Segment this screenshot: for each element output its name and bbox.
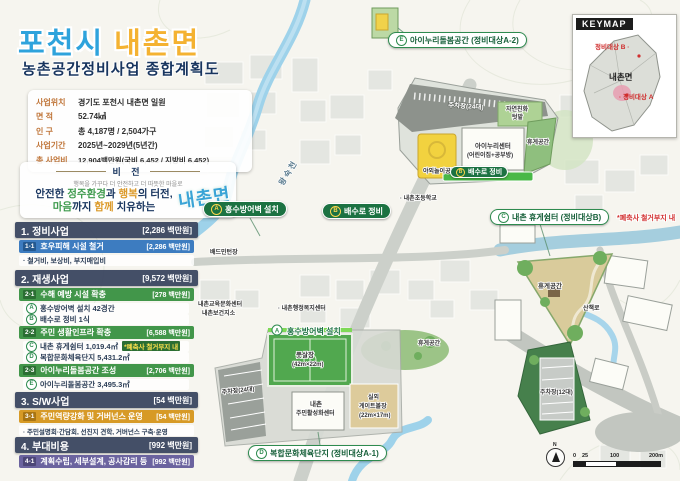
item-b-badge: B xyxy=(26,314,37,325)
scale-tick-200: 200m xyxy=(649,453,663,459)
inset-c-path-label: 산책로 xyxy=(583,304,600,312)
callout-d-badge: D xyxy=(256,448,267,459)
inset-d-rest-label: 휴게공간 xyxy=(418,339,441,347)
callout-c-badge: C xyxy=(498,212,509,223)
info-label: 인 구 xyxy=(36,126,78,137)
scale-segment-white xyxy=(585,462,617,466)
callout-a-badge: A xyxy=(211,204,222,215)
north-letter: N xyxy=(553,442,557,448)
inset-c-parking-label: 주차장(12대) xyxy=(540,388,573,396)
sub-item-amount: [54 백만원] xyxy=(156,412,190,422)
keymap-panel: KEYMAP 정비대상 B · 내촌면 · 정비대상 A xyxy=(572,14,677,138)
rest-shelter-site-note: *폐축사 철거부지 내 xyxy=(617,213,675,223)
item-d-badge: D xyxy=(26,352,37,363)
inset-d-gateball-label-3: (22m×17m) xyxy=(359,413,391,419)
sub-item-amount: [278 백만원] xyxy=(152,290,190,300)
keymap-title: KEYMAP xyxy=(576,18,633,30)
sub-item-amount: [992 백만원] xyxy=(152,457,190,467)
sub-item-2-1: 2-1 수해 예방 시설 확충 [278 백만원] xyxy=(19,288,194,301)
callout-e-badge: E xyxy=(396,35,407,46)
inset-e-rest-label: 휴게공간 xyxy=(527,138,550,146)
sub-item-label: 호우피해 시설 철거 xyxy=(40,241,103,252)
list-item-childcare: E 아이누리돌봄공간 3,495.3㎡ xyxy=(23,379,189,390)
vision-text: 정주환경 xyxy=(67,188,106,200)
scale-tick-25: 25 xyxy=(582,453,588,459)
sub-item-2-2: 2-2 주민 생활인프라 확충 [6,588 백만원] xyxy=(19,326,194,339)
vision-text: 행복 xyxy=(118,188,137,200)
inset-e-garden-label-2: 텃밭 xyxy=(512,113,524,121)
section-title: 2. 재생사업 xyxy=(21,271,69,286)
sub-item-amount: [2,286 백만원] xyxy=(147,242,190,252)
item-text: 홍수방어벽 설치 42경간 xyxy=(40,303,115,314)
sub-item-4-1: 4-1 계획수립, 세부설계, 공사감리 등 [992 백만원] xyxy=(19,455,194,468)
scale-bar-segments xyxy=(573,461,661,467)
item-c-badge: C xyxy=(26,341,37,352)
info-label: 사업기간 xyxy=(36,140,78,151)
callout-label: 아이누리돌봄공간 (정비대상A-2) xyxy=(410,35,519,46)
list-item-sports-complex: D 복합문화체육단지 5,431.2㎡ xyxy=(23,352,189,363)
scale-ticks: 0 25 100 200m xyxy=(573,453,661,461)
north-triangle xyxy=(552,452,560,462)
section-title: 1. 정비사업 xyxy=(21,223,69,238)
item-text: 복합문화체육단지 5,431.2㎡ xyxy=(40,352,130,363)
sub-item-label: 수해 예방 시설 확충 xyxy=(40,289,106,300)
keymap-target-b-label: 정비대상 B · xyxy=(595,41,629,51)
item-text: 배수로 정비 1식 xyxy=(40,314,90,325)
sub-item-chip: 4-1 xyxy=(23,457,36,466)
item-e-badge: E xyxy=(26,379,37,390)
list-item-drainage: B 배수로 정비 1식 xyxy=(23,314,189,325)
vision-text: 안전한 xyxy=(35,188,67,200)
info-row-location: 사업위치 경기도 포천시 내촌면 일원 xyxy=(36,95,244,110)
callout-sports-complex: D 복합문화체육단지 (정비대상A-1) xyxy=(248,445,387,461)
item-note: *폐축사 철거부지 내 xyxy=(122,341,180,351)
vision-text: 치유하는 xyxy=(114,201,156,213)
vision-heading-text: 비 전 xyxy=(112,165,143,178)
info-label: 사업위치 xyxy=(36,97,78,108)
scale-segment-black xyxy=(574,462,585,466)
list-item-rest-shelter: C 내촌 휴게쉼터 1,019.4㎡ *폐축사 철거부지 내 xyxy=(23,341,189,352)
section-3-header: 3. S/W사업 [54 백만원] xyxy=(15,392,198,408)
callout-childcare-space: E 아이누리돌봄공간 (정비대상A-2) xyxy=(388,32,527,48)
info-value: 52.74㎢ xyxy=(78,111,106,122)
bullet-1: · 철거비, 보상비, 부지매입비 xyxy=(19,255,194,266)
sub-item-chip: 1-1 xyxy=(23,242,36,251)
scale-tick-0: 0 xyxy=(573,453,576,459)
inset-e-center-label-2: (어린이집+공부방) xyxy=(467,151,513,159)
info-value: 2025년~2029년(5년간) xyxy=(78,140,157,151)
callout-label: 내촌 휴게쉼터 (정비대상B) xyxy=(512,212,601,223)
inset-d-gateball-label-1: 실외 xyxy=(368,393,379,401)
project-info-panel: 사업위치 경기도 포천시 내촌면 일원 면 적 52.74㎢ 인 구 총 4,1… xyxy=(28,90,252,172)
callout-drainage: B 배수로 정비 xyxy=(322,203,391,219)
divider xyxy=(150,171,200,172)
sub-item-1-1: 1-1 호우피해 시설 철거 [2,286 백만원] xyxy=(19,240,194,253)
bullet-3: · 주민설명회·간담회, 선진지 견학, 거버넌스 구축·운영 xyxy=(19,425,194,436)
list-item-flood-wall: A 홍수방어벽 설치 42경간 xyxy=(23,303,189,314)
info-value: 총 4,187명 / 2,504가구 xyxy=(78,126,156,137)
scale-segment-black xyxy=(617,462,660,466)
vision-line-1: 안전한 정주환경과 행복의 터전, xyxy=(20,188,188,201)
sub-item-chip: 2-1 xyxy=(23,290,36,299)
inset-d-building-label-1: 내촌 xyxy=(310,399,322,408)
inset-d-flood-badge: A xyxy=(275,329,280,335)
title-city: 포천시 xyxy=(18,28,104,60)
sub-item-label: 주민역량강화 및 거버넌스 운영 xyxy=(40,411,142,422)
north-arrow-icon: N xyxy=(546,448,565,467)
vision-text: 까지 xyxy=(72,201,94,213)
sub-item-3-1: 3-1 주민역량강화 및 거버넌스 운영 [54 백만원] xyxy=(19,410,194,423)
sub-item-chip: 2-2 xyxy=(23,328,36,337)
elementary-school-label: · 내촌초등학교 xyxy=(400,194,437,202)
plan-poster: 주차장(24대) 야외놀이공간 아이누리센터 (어린이집+공부방) 자연친화 텃… xyxy=(0,0,680,481)
callout-b-badge: B xyxy=(330,206,341,217)
callout-b-badge: B xyxy=(456,168,465,177)
map-scale-group: N 0 25 100 200m xyxy=(546,448,661,467)
item-text: 아이누리돌봄공간 3,495.3㎡ xyxy=(40,379,130,390)
keymap-target-b-dot xyxy=(637,54,640,57)
river-name-label: 왕숙천 xyxy=(276,158,299,187)
admin-center-label: · 내촌행정복지센터 xyxy=(278,304,326,312)
page-title: 포천시 내촌면 xyxy=(18,20,200,62)
keymap-region-label: 내촌면 xyxy=(609,71,632,83)
section-title: 4. 부대비용 xyxy=(21,438,69,453)
edu-center-label: 내촌교육문화센터 xyxy=(198,300,242,308)
vision-text: 과 xyxy=(106,188,119,200)
section-2-header: 2. 재생사업 [9,572 백만원] xyxy=(15,270,198,286)
sub-item-label: 주민 생활인프라 확충 xyxy=(40,327,111,338)
section-1-header: 1. 정비사업 [2,286 백만원] xyxy=(15,222,198,238)
badminton-court-label: 배드민턴장 xyxy=(210,248,238,256)
inset-d-building-label-2: 주민활성화센터 xyxy=(296,409,335,417)
vision-text: 마음 xyxy=(53,201,72,213)
sub-item-label: 아이누리돌봄공간 조성 xyxy=(40,365,116,376)
info-label: 면 적 xyxy=(36,111,78,122)
callout-label: 배수로 정비 xyxy=(344,206,383,217)
sub-item-chip: 2-3 xyxy=(23,366,36,375)
item-text: 내촌 휴게쉼터 1,019.4㎡ xyxy=(40,341,118,352)
item-a-badge: A xyxy=(26,303,37,314)
info-row-period: 사업기간 2025년~2029년(5년간) xyxy=(36,139,244,154)
callout-drainage-inset: B 배수로 정비 xyxy=(450,166,508,178)
callout-flood-wall: A 홍수방어벽 설치 xyxy=(203,201,287,217)
section-title: 3. S/W사업 xyxy=(21,393,69,408)
section-amount: [54 백만원] xyxy=(153,395,192,406)
section-4-header: 4. 부대비용 [992 백만원] xyxy=(15,437,198,453)
page-subtitle: 농촌공간정비사업 종합계획도 xyxy=(22,58,220,79)
sub-item-chip: 3-1 xyxy=(23,412,36,421)
sub-item-2-3: 2-3 아이누리돌봄공간 조성 [2,706 백만원] xyxy=(19,364,194,377)
sub-item-amount: [6,588 백만원] xyxy=(147,328,190,338)
section-amount: [2,286 백만원] xyxy=(142,225,192,236)
info-row-population: 인 구 총 4,187명 / 2,504가구 xyxy=(36,124,244,139)
vision-text: 함께 xyxy=(94,201,113,213)
section-amount: [992 백만원] xyxy=(149,440,192,451)
inset-d-gateball-label-2: 게이트볼장 xyxy=(359,402,387,410)
sub-item-amount: [2,706 백만원] xyxy=(147,366,190,376)
keymap-target-a-label: · 정비대상 A xyxy=(619,91,653,101)
scale-bar: 0 25 100 200m xyxy=(573,453,661,467)
inset-e-center-label-1: 아이누리센터 xyxy=(475,141,511,150)
vision-heading: 비 전 xyxy=(20,165,236,178)
section-amount: [9,572 백만원] xyxy=(142,273,192,284)
divider xyxy=(56,171,106,172)
callout-label: 배수로 정비 xyxy=(468,167,502,177)
callout-label: 홍수방어벽 설치 xyxy=(225,204,279,215)
inset-d-futsal-label-1: 풋살장 xyxy=(296,350,314,359)
callout-label: 복합문화체육단지 (정비대상A-1) xyxy=(270,448,379,459)
health-center-label: 내촌보건지소 xyxy=(202,309,236,317)
sub-item-label: 계획수립, 세부설계, 공사감리 등 xyxy=(40,456,147,467)
inset-c-rest-label: 휴게공간 xyxy=(538,281,562,290)
title-myeon: 내촌면 xyxy=(114,28,200,60)
vision-line-2: 마음까지 함께 치유하는 xyxy=(20,201,188,214)
info-value: 경기도 포천시 내촌면 일원 xyxy=(78,97,166,108)
scale-tick-100: 100 xyxy=(610,453,619,459)
info-row-area: 면 적 52.74㎢ xyxy=(36,110,244,125)
vision-text: 의 터전, xyxy=(138,188,173,200)
callout-rest-shelter: C 내촌 휴게쉼터 (정비대상B) xyxy=(490,209,609,225)
inset-d-flood-label: 홍수방어벽 설치 xyxy=(287,326,341,336)
inset-d-futsal-label-2: (42m×22m) xyxy=(292,362,324,368)
inset-e-garden-label-1: 자연친화 xyxy=(506,105,529,113)
